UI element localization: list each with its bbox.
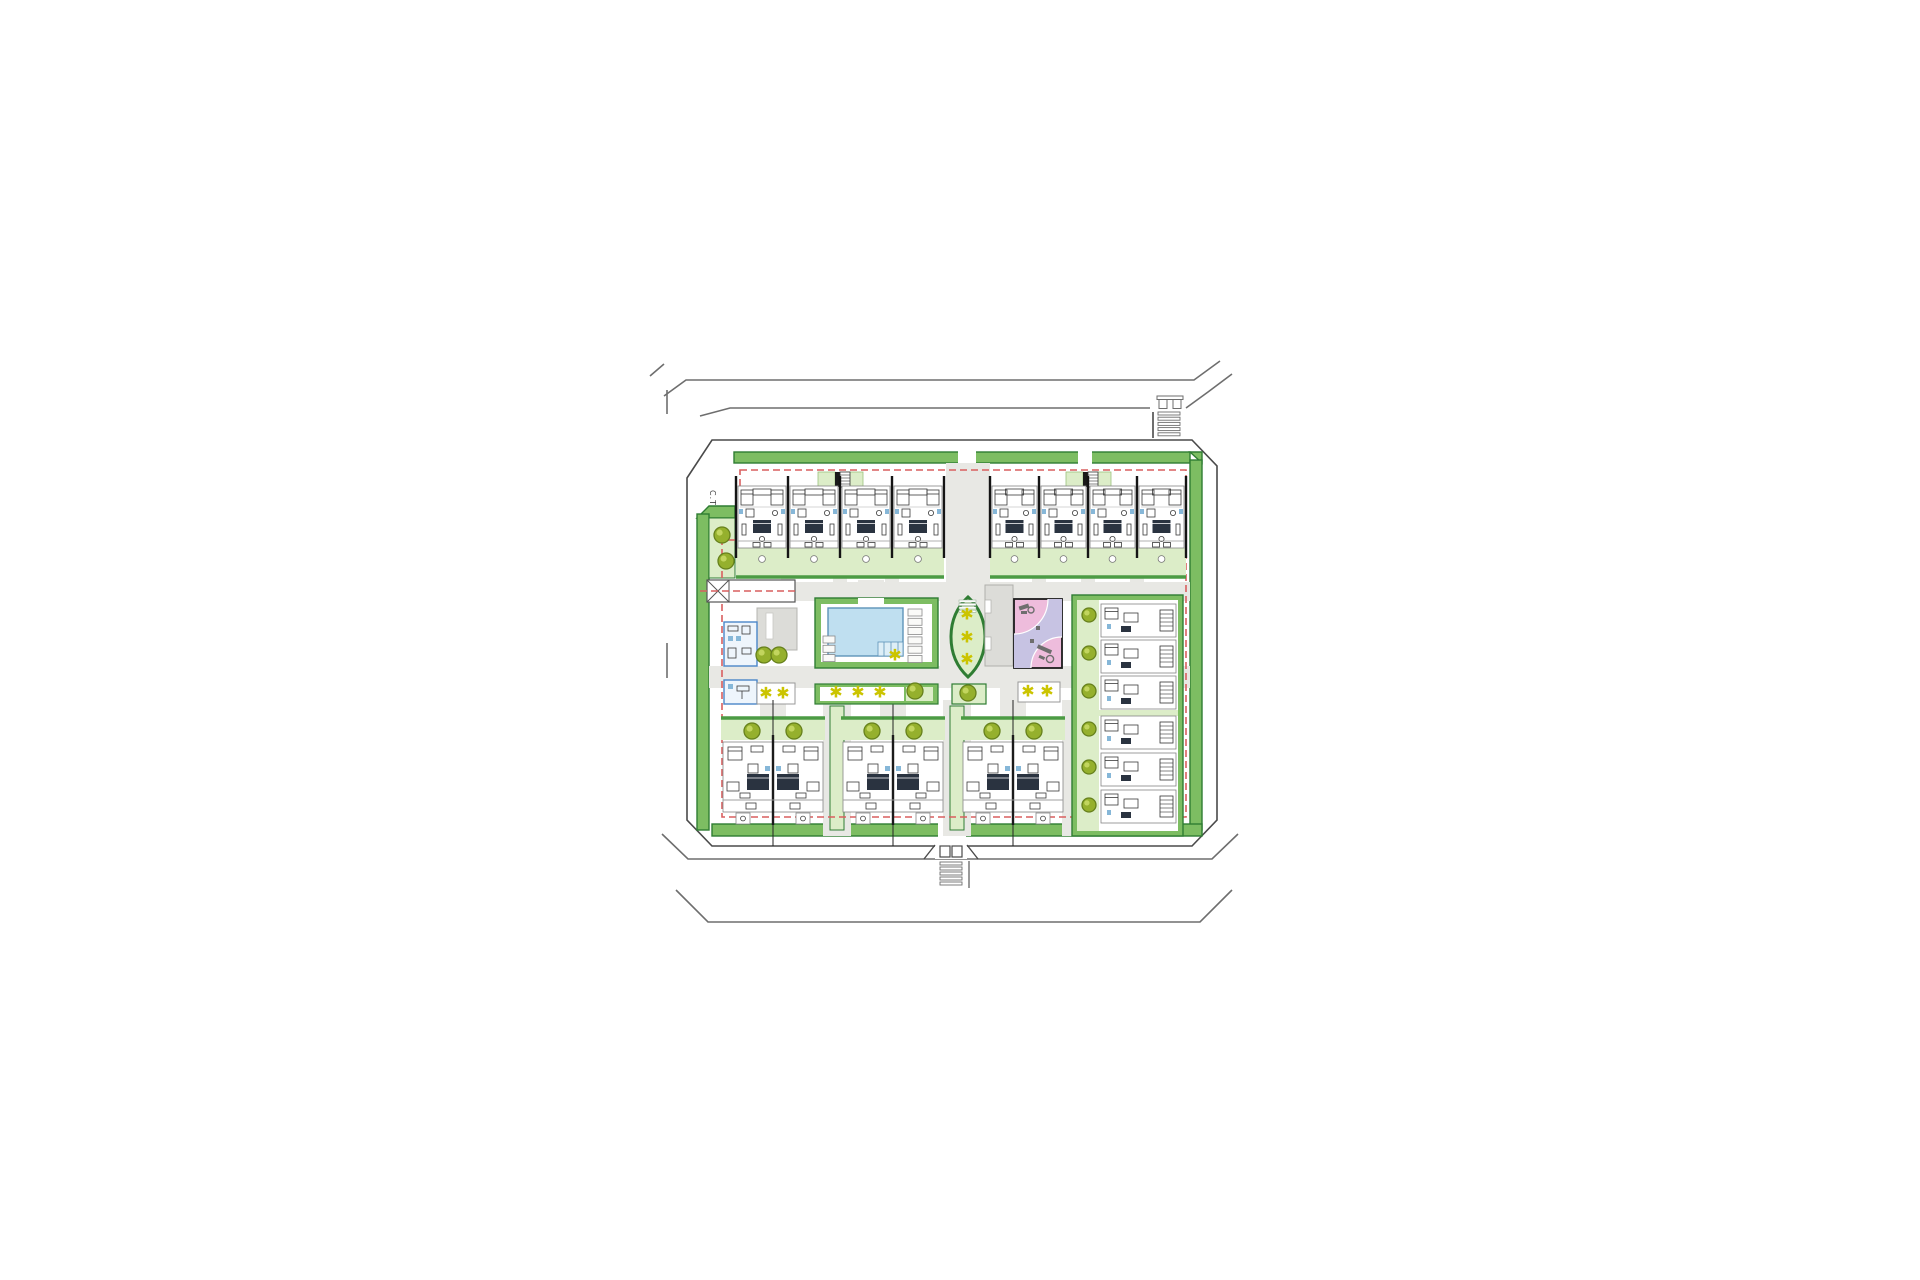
tree-icon: [907, 683, 923, 699]
tree-icon: [718, 553, 734, 569]
zebra-bar: [1158, 412, 1180, 415]
shrub-star-icon: ✱: [829, 683, 842, 702]
zebra-bar: [1158, 433, 1180, 436]
zebra-bar: [1158, 417, 1180, 420]
office-building: [724, 622, 757, 666]
party-wall: [1087, 476, 1089, 558]
tree-icon: [771, 647, 787, 663]
playground: [1014, 599, 1062, 668]
right-unit: [1101, 753, 1176, 786]
oval-stair-step: [959, 600, 976, 602]
shrub-star-icon: ✱: [888, 646, 901, 665]
party-wall: [943, 476, 945, 558]
right-unit: [1101, 640, 1176, 673]
zebra-bar: [1158, 428, 1180, 431]
bottom-block: [841, 700, 945, 846]
shrub-star-icon: ✱: [759, 684, 772, 703]
sunbed: [908, 646, 922, 653]
tree-highlight: [789, 726, 795, 732]
tree-icon: [984, 723, 1000, 739]
tree-highlight: [1084, 762, 1089, 767]
green-band-right: [1190, 460, 1202, 830]
tree-icon: [756, 647, 772, 663]
tree-highlight: [747, 726, 753, 732]
shrub-star-icon: ✱: [960, 628, 973, 647]
slab-notch: [985, 637, 991, 650]
pool-gate: [858, 598, 884, 606]
tree-highlight: [963, 688, 969, 694]
tree-icon: [1082, 684, 1096, 698]
site-plan-page: C.T: [0, 0, 1920, 1280]
garden-planter: [863, 556, 870, 563]
porch: [796, 813, 810, 824]
tree-highlight: [717, 530, 723, 536]
bottom-residential-blocks: [721, 700, 1065, 846]
right-unit: [1101, 604, 1176, 637]
canopy-building: [757, 608, 797, 650]
tree-highlight: [721, 556, 727, 562]
bus-stop-post: [1159, 400, 1167, 409]
zebra-bar: [940, 877, 962, 880]
right-unit: [1101, 716, 1176, 749]
south-entrance: [924, 845, 978, 888]
site-plan-drawing: C.T: [0, 0, 1920, 1280]
sunbed: [823, 645, 835, 652]
sunbed: [908, 609, 922, 616]
core-green: [1066, 472, 1083, 487]
tree-highlight: [910, 686, 916, 692]
core-stair: [840, 472, 850, 487]
tree-highlight: [1084, 724, 1089, 729]
party-wall: [989, 476, 991, 558]
shrub-star-icon: ✱: [776, 684, 789, 703]
green-band-left: [697, 514, 709, 830]
zebra-bar: [940, 867, 962, 870]
right-unit-stair: [1160, 722, 1173, 743]
gym-building: [724, 680, 757, 704]
tree-highlight: [909, 726, 915, 732]
tree-icon: [786, 723, 802, 739]
shrub-star-icon: ✱: [960, 605, 973, 624]
bus-stop-post: [1173, 400, 1181, 409]
porch: [976, 813, 990, 824]
tree-icon: [1082, 646, 1096, 660]
top-road-curb-left: [700, 408, 1150, 416]
tree-icon: [1082, 722, 1096, 736]
tree-highlight: [1084, 610, 1089, 615]
shrub-star-icon: ✱: [873, 683, 886, 702]
porch: [856, 813, 870, 824]
garden-planter: [1158, 556, 1165, 563]
ct-label: C.T: [708, 490, 717, 506]
tree-highlight: [759, 650, 765, 656]
zebra-crossing-bottom: [940, 862, 962, 885]
bus-stop-icon: [1157, 396, 1183, 400]
slab-notch: [985, 600, 991, 613]
porch: [736, 813, 750, 824]
party-wall: [1038, 476, 1040, 558]
right-unit-stair: [1160, 796, 1173, 817]
band-gap-top-center: [958, 451, 976, 464]
porch: [916, 813, 930, 824]
tree-icon: [744, 723, 760, 739]
right-tree-strip: [1077, 600, 1099, 831]
tree-highlight: [1029, 726, 1035, 732]
tree-icon: [1082, 798, 1096, 812]
gate-leaf: [940, 846, 950, 857]
top-road-curb-right: [1186, 374, 1232, 408]
garden-planter: [1011, 556, 1018, 563]
core-green: [818, 472, 835, 487]
garden-planter: [915, 556, 922, 563]
shrub-star-icon: ✱: [851, 683, 864, 702]
right-unit-stair: [1160, 759, 1173, 780]
tree-icon: [864, 723, 880, 739]
tree-highlight: [987, 726, 993, 732]
garden-planter: [1109, 556, 1116, 563]
sunbed: [908, 628, 922, 635]
zebra-bar: [940, 862, 962, 865]
tree-icon: [714, 527, 730, 543]
core-stair: [1088, 472, 1098, 487]
tree-highlight: [867, 726, 873, 732]
entrance-splay: [924, 845, 935, 859]
right-unit-stair: [1160, 682, 1173, 703]
tree-icon: [1026, 723, 1042, 739]
bottom-block: [961, 700, 1065, 846]
party-wall: [839, 476, 841, 558]
top-road-outer-edge: [664, 361, 1220, 396]
community-slab: [985, 585, 1013, 666]
right-unit: [1101, 790, 1176, 823]
sunbed: [908, 656, 922, 663]
party-wall: [787, 476, 789, 558]
shrub-star-icon: ✱: [1021, 682, 1034, 701]
tree-highlight: [1084, 648, 1089, 653]
top-road-break: [650, 364, 664, 376]
tree-icon: [1082, 608, 1096, 622]
zebra-bar: [940, 872, 962, 875]
tree-icon: [1082, 760, 1096, 774]
gate-leaf: [952, 846, 962, 857]
party-wall: [1185, 476, 1187, 558]
zebra-bar: [1158, 422, 1180, 425]
tree-highlight: [774, 650, 780, 656]
party-wall: [1136, 476, 1138, 558]
tree-highlight: [1084, 800, 1089, 805]
tree-highlight: [1084, 686, 1089, 691]
porch: [1036, 813, 1050, 824]
garden-planter: [1060, 556, 1067, 563]
right-column-divider: [1099, 710, 1178, 716]
sunbed: [908, 618, 922, 625]
bottom-block: [721, 700, 825, 846]
tree-icon: [960, 685, 976, 701]
canopy-skylight: [766, 613, 773, 639]
bottom-road-far-edge: [676, 890, 1232, 922]
sunbed: [823, 655, 835, 662]
shrub-star-icon: ✱: [960, 650, 973, 669]
zebra-crossing-top: [1158, 412, 1180, 436]
entrance-splay: [967, 845, 978, 859]
sunbed: [908, 637, 922, 644]
party-wall: [735, 476, 737, 558]
right-unit-stair: [1160, 610, 1173, 631]
right-unit: [1101, 676, 1176, 709]
tree-icon: [906, 723, 922, 739]
garden-planter: [811, 556, 818, 563]
band-gap-top-right: [1078, 451, 1092, 464]
zebra-bar: [940, 882, 962, 885]
sunbed: [823, 636, 835, 643]
right-unit-stair: [1160, 646, 1173, 667]
shrub-star-icon: ✱: [1040, 682, 1053, 701]
garden-planter: [759, 556, 766, 563]
top-crossing: [1153, 396, 1183, 438]
party-wall: [891, 476, 893, 558]
